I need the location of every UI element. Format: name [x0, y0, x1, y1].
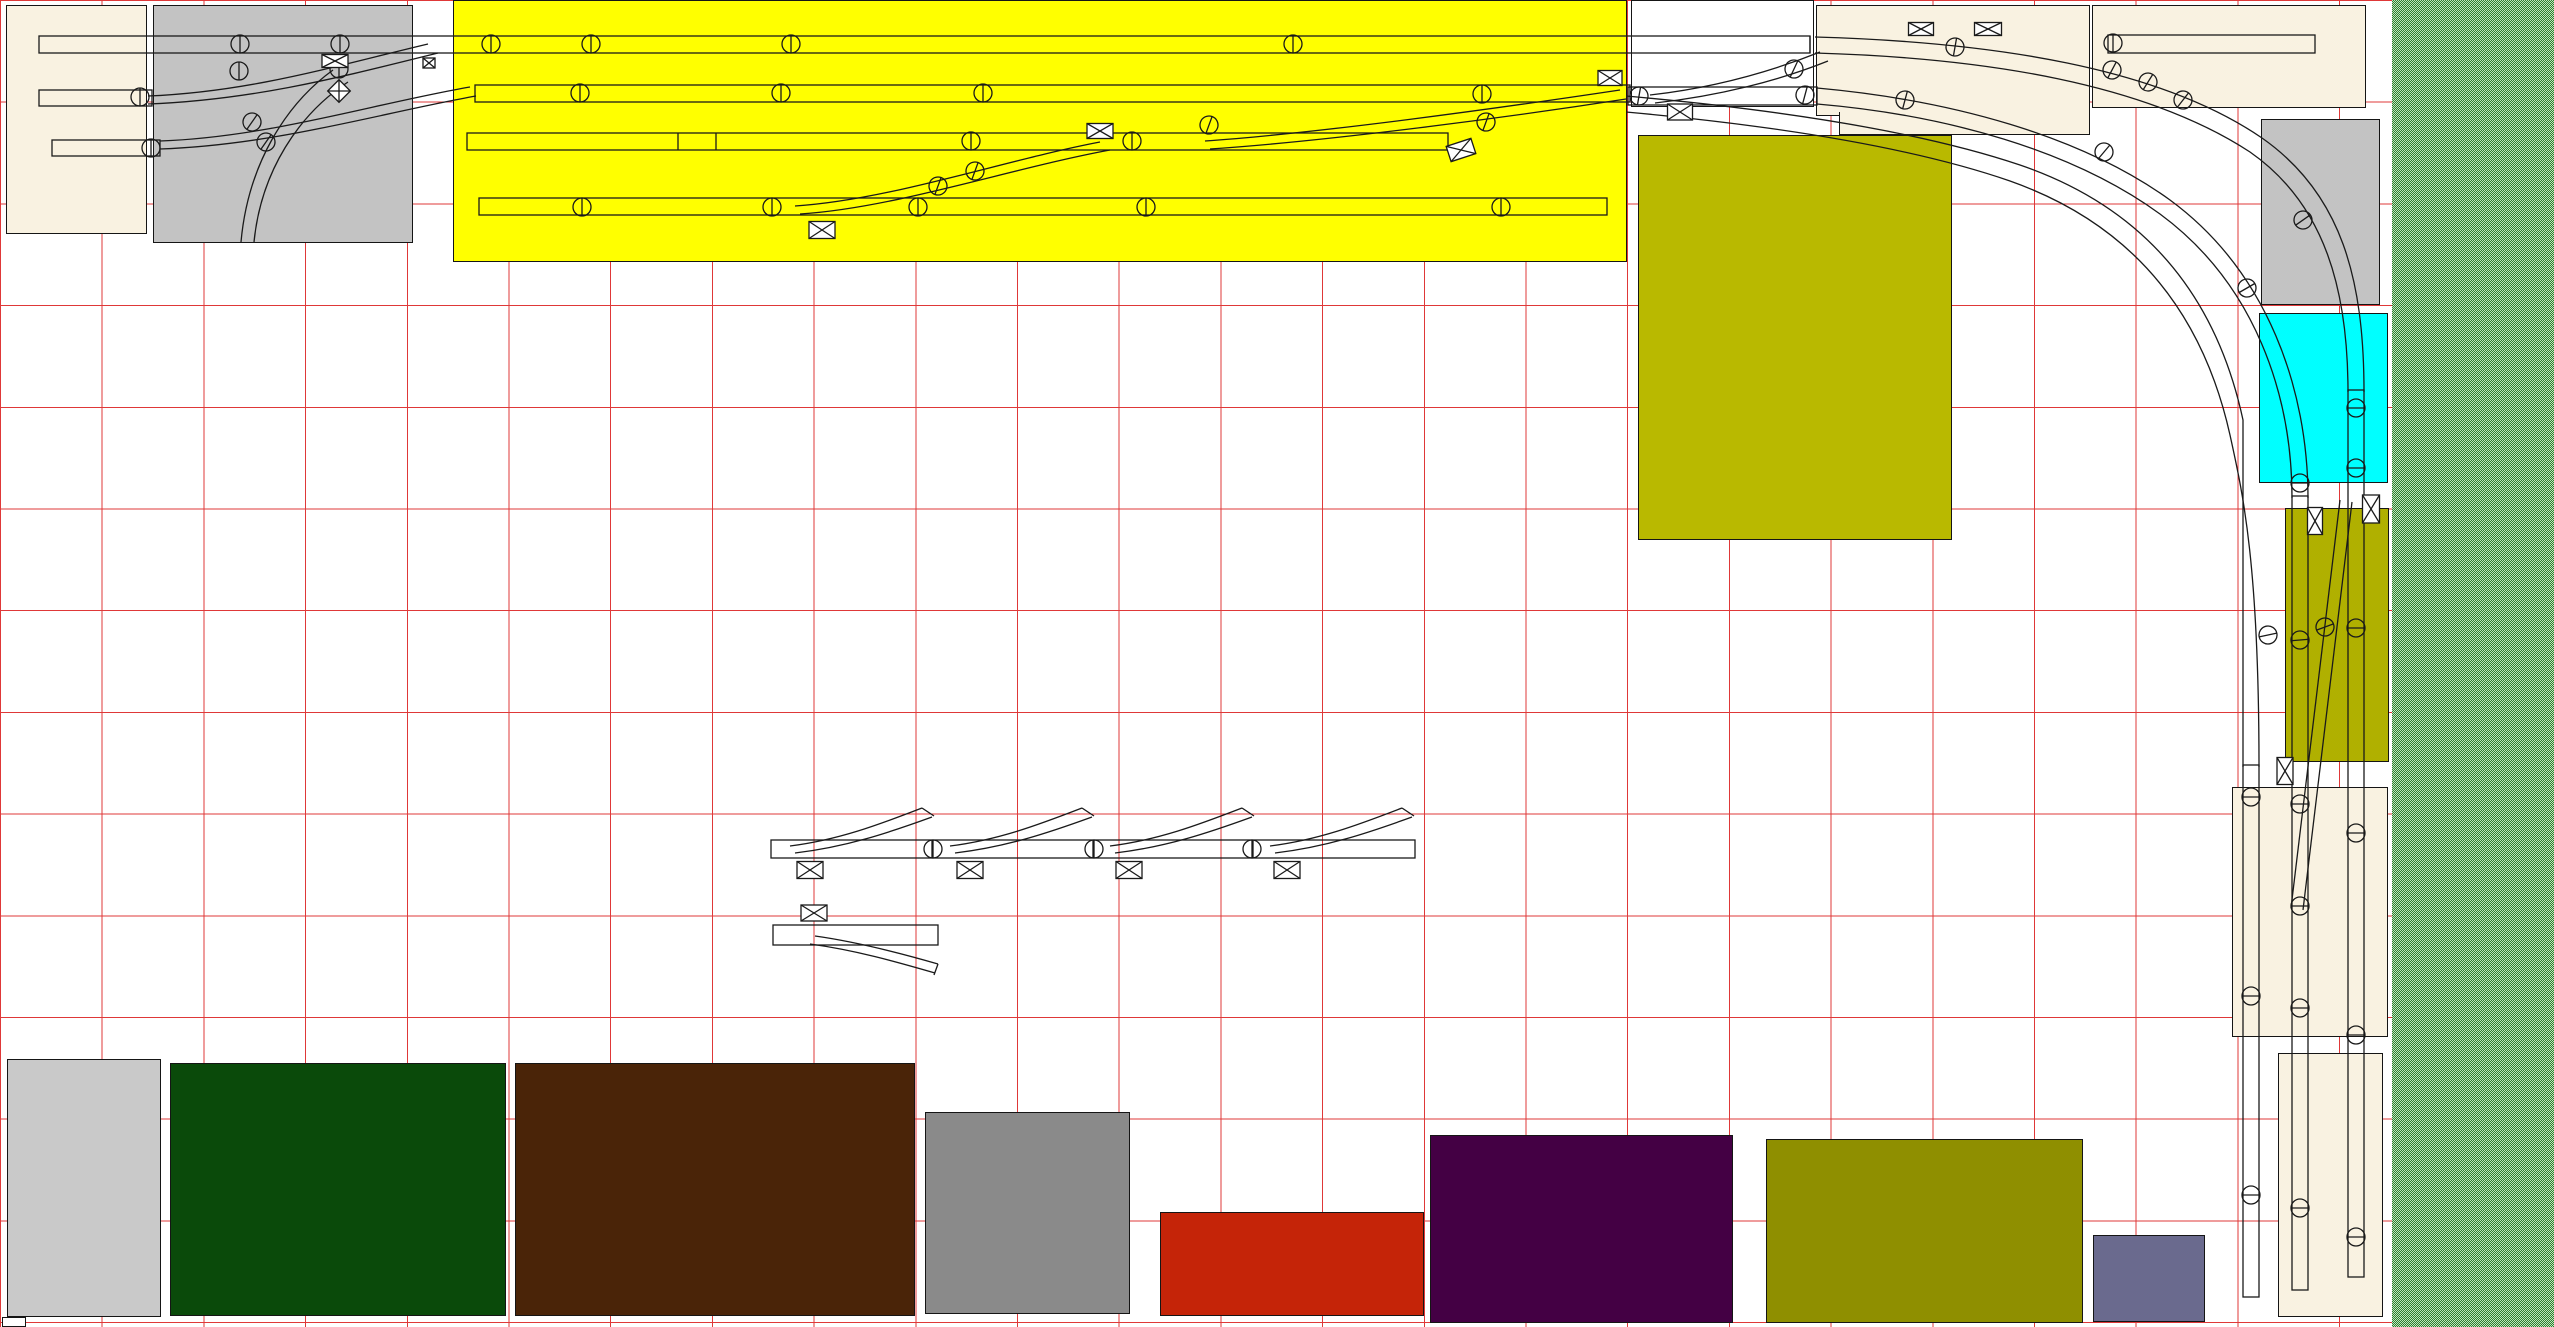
endpoint-connector-icon[interactable] — [763, 198, 781, 216]
endpoint-connector-icon[interactable] — [2291, 999, 2309, 1017]
endpoint-connector-icon[interactable] — [1284, 35, 1302, 53]
yard-diag-2b[interactable] — [1210, 99, 1626, 149]
throat-curve-1b[interactable] — [148, 53, 438, 104]
endpoint-connector-icon[interactable] — [2347, 824, 2365, 842]
layout-canvas — [0, 0, 2554, 1327]
endpoint-connector-icon[interactable] — [582, 35, 600, 53]
throat-curve-2a[interactable] — [160, 87, 470, 141]
endpoint-connector-icon[interactable] — [1474, 110, 1497, 133]
endpoint-connector-icon[interactable] — [2347, 1228, 2365, 1246]
switch-motor-icon[interactable] — [1446, 138, 1476, 161]
switch-motor-icon[interactable] — [1975, 23, 2002, 36]
main-curve-a2[interactable] — [1815, 53, 2348, 392]
throat-curve-3a[interactable] — [241, 70, 333, 242]
endpoint-connector-icon[interactable] — [2291, 897, 2309, 915]
main-curve-c1[interactable] — [1626, 96, 2243, 767]
switch-motor-icon[interactable] — [2277, 758, 2293, 785]
switch-motor-icon[interactable] — [797, 862, 823, 879]
endpoint-connector-icon[interactable] — [2291, 474, 2309, 492]
ladder-branch-4b[interactable] — [1275, 817, 1412, 853]
olive-crossover-b[interactable] — [2291, 500, 2340, 908]
endpoint-connector-icon[interactable] — [2291, 795, 2309, 813]
endpoint-connector-icon[interactable] — [2290, 207, 2315, 232]
ladder-branch-2cap[interactable] — [1082, 808, 1094, 816]
endpoint-connector-icon[interactable] — [573, 198, 591, 216]
turnout-branch-a[interactable] — [815, 936, 938, 964]
endpoint-connector-icon[interactable] — [131, 88, 149, 106]
turnout-straight[interactable] — [773, 925, 938, 945]
endpoint-connector-icon[interactable] — [331, 35, 349, 53]
endpoint-connector-icon[interactable] — [2136, 70, 2161, 95]
yard-diag-1a[interactable] — [795, 142, 1100, 206]
endpoint-connector-icon[interactable] — [230, 62, 248, 80]
switch-motor-icon[interactable] — [1668, 104, 1693, 120]
endpoint-connector-icon[interactable] — [2347, 399, 2365, 417]
endpoint-connector-icon[interactable] — [2100, 58, 2124, 82]
yard-track-4[interactable] — [479, 198, 1607, 215]
yard-track-2[interactable] — [475, 85, 1630, 102]
switch-motor-icon[interactable] — [322, 55, 348, 68]
endpoint-connector-icon[interactable] — [1243, 840, 1261, 858]
endpoint-connector-icon[interactable] — [1782, 57, 1806, 81]
endpoint-connector-icon[interactable] — [926, 174, 949, 197]
endpoint-connector-icon[interactable] — [2313, 615, 2336, 638]
switch-motor-icon[interactable] — [957, 862, 983, 879]
vertical-track-a[interactable] — [2243, 765, 2259, 1297]
endpoint-connector-icon[interactable] — [772, 84, 790, 102]
switch-motor-icon[interactable] — [1598, 71, 1622, 86]
endpoint-connector-icon[interactable] — [1085, 840, 1103, 858]
endpoint-connector-icon[interactable] — [2290, 630, 2310, 650]
throat-curve-2b[interactable] — [160, 96, 476, 149]
endpoint-connector-icon[interactable] — [2291, 1199, 2309, 1217]
exit-diag-b[interactable] — [1655, 61, 1828, 103]
stub-track-ne[interactable] — [2108, 35, 2315, 53]
yard-diag-1b[interactable] — [800, 150, 1110, 214]
ladder-branch-1b[interactable] — [795, 817, 932, 853]
endpoint-connector-icon[interactable] — [962, 132, 980, 150]
endpoint-connector-icon[interactable] — [924, 840, 942, 858]
endpoint-connector-icon[interactable] — [1492, 198, 1510, 216]
throat-curve-3b[interactable] — [254, 82, 348, 242]
yard-track-1[interactable] — [39, 36, 1810, 53]
switch-motor-icon[interactable] — [423, 58, 435, 68]
endpoint-connector-icon[interactable] — [2347, 459, 2365, 477]
main-curve-b2[interactable] — [1817, 104, 2292, 498]
switch-motor-icon[interactable] — [809, 222, 835, 239]
endpoint-connector-icon[interactable] — [571, 84, 589, 102]
turnout-branch-cap[interactable] — [934, 964, 938, 975]
endpoint-connector-icon[interactable] — [782, 35, 800, 53]
main-curve-a1[interactable] — [1815, 37, 2364, 392]
ladder-branch-2b[interactable] — [955, 817, 1092, 853]
switch-motor-icon[interactable] — [1909, 23, 1934, 36]
ladder-branch-3cap[interactable] — [1242, 808, 1254, 816]
main-curve-c2[interactable] — [1626, 112, 2259, 767]
stub-track-b[interactable] — [39, 90, 152, 106]
endpoint-connector-icon[interactable] — [909, 198, 927, 216]
endpoint-connector-icon[interactable] — [2242, 987, 2260, 1005]
endpoint-connector-icon[interactable] — [974, 84, 992, 102]
endpoint-connector-icon[interactable] — [2347, 619, 2365, 637]
endpoint-connector-icon[interactable] — [142, 139, 160, 157]
endpoint-connector-icon[interactable] — [253, 129, 278, 154]
endpoint-connector-icon[interactable] — [1894, 89, 1916, 111]
ladder-branch-4cap[interactable] — [1402, 808, 1414, 816]
endpoint-connector-icon[interactable] — [2257, 624, 2278, 645]
endpoint-connector-icon[interactable] — [2242, 788, 2260, 806]
endpoint-connector-icon[interactable] — [2347, 1026, 2365, 1044]
endpoint-connector-icon[interactable] — [482, 35, 500, 53]
switch-motor-icon[interactable] — [2308, 508, 2323, 535]
switch-motor-icon[interactable] — [1087, 124, 1113, 139]
switch-motor-icon[interactable] — [1274, 862, 1300, 879]
endpoint-connector-icon[interactable] — [1473, 85, 1491, 103]
switch-motor-icon[interactable] — [801, 905, 827, 921]
endpoint-connector-icon[interactable] — [231, 35, 249, 53]
endpoint-connector-icon[interactable] — [2242, 1186, 2260, 1204]
ladder-branch-3b[interactable] — [1115, 817, 1252, 853]
switch-motor-icon[interactable] — [2363, 495, 2380, 523]
endpoint-connector-icon[interactable] — [1123, 132, 1141, 150]
endpoint-connector-icon[interactable] — [2091, 139, 2116, 164]
endpoint-connector-icon[interactable] — [2170, 87, 2195, 112]
ladder-branch-1cap[interactable] — [922, 808, 934, 816]
track-svg — [0, 0, 2554, 1327]
olive-crossover-a[interactable] — [2303, 502, 2352, 910]
switch-motor-icon[interactable] — [1116, 862, 1142, 879]
endpoint-connector-icon[interactable] — [2104, 34, 2122, 52]
endpoint-connector-icon[interactable] — [1137, 198, 1155, 216]
